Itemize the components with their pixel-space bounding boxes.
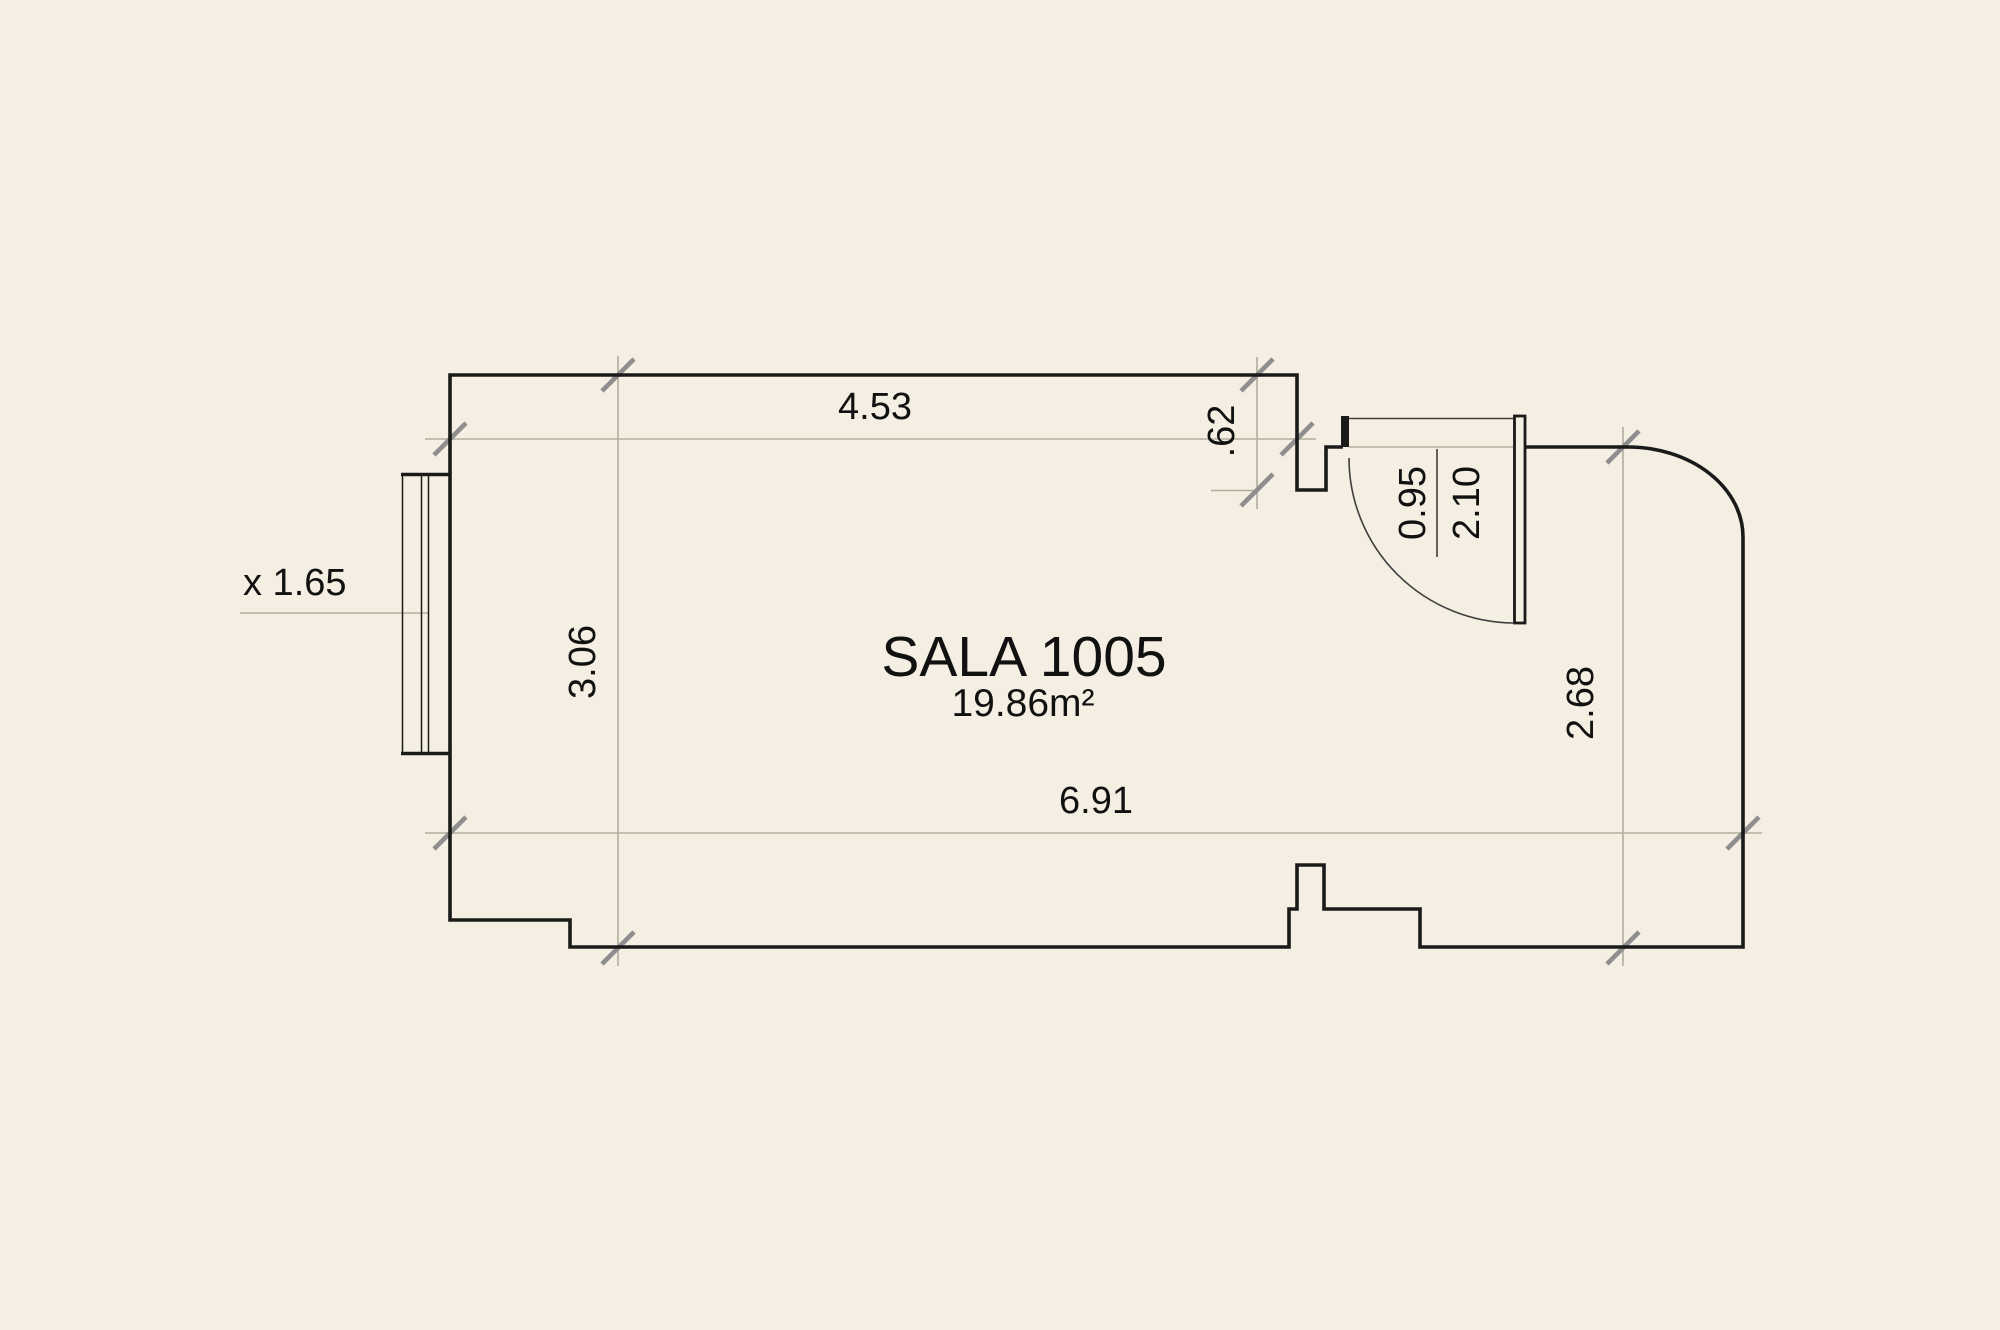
labels: SALA 1005 19.86m² 4.53 6.91 x 1.65 .62 3…: [243, 386, 1602, 822]
window: [401, 474, 450, 754]
door-leaf: [1515, 416, 1526, 623]
dim-left-height-label: 3.06: [562, 625, 604, 699]
floor-plan-svg: SALA 1005 19.86m² 4.53 6.91 x 1.65 .62 3…: [0, 0, 2000, 1330]
door-height-label: 2.10: [1446, 466, 1488, 540]
dim-top-step-label: .62: [1201, 405, 1243, 458]
dim-bottom-width-label: 6.91: [1059, 780, 1133, 822]
door-left-jamb: [1341, 416, 1349, 447]
room-name-label: SALA 1005: [881, 625, 1166, 689]
window-sill-label: x 1.65: [243, 562, 347, 604]
room-area-label: 19.86m²: [951, 682, 1094, 725]
door-width-label: 0.95: [1392, 466, 1434, 540]
dim-top-width-label: 4.53: [838, 386, 912, 428]
dim-right-height-label: 2.68: [1560, 666, 1602, 740]
floor-plan-page: SALA 1005 19.86m² 4.53 6.91 x 1.65 .62 3…: [0, 0, 2000, 1330]
